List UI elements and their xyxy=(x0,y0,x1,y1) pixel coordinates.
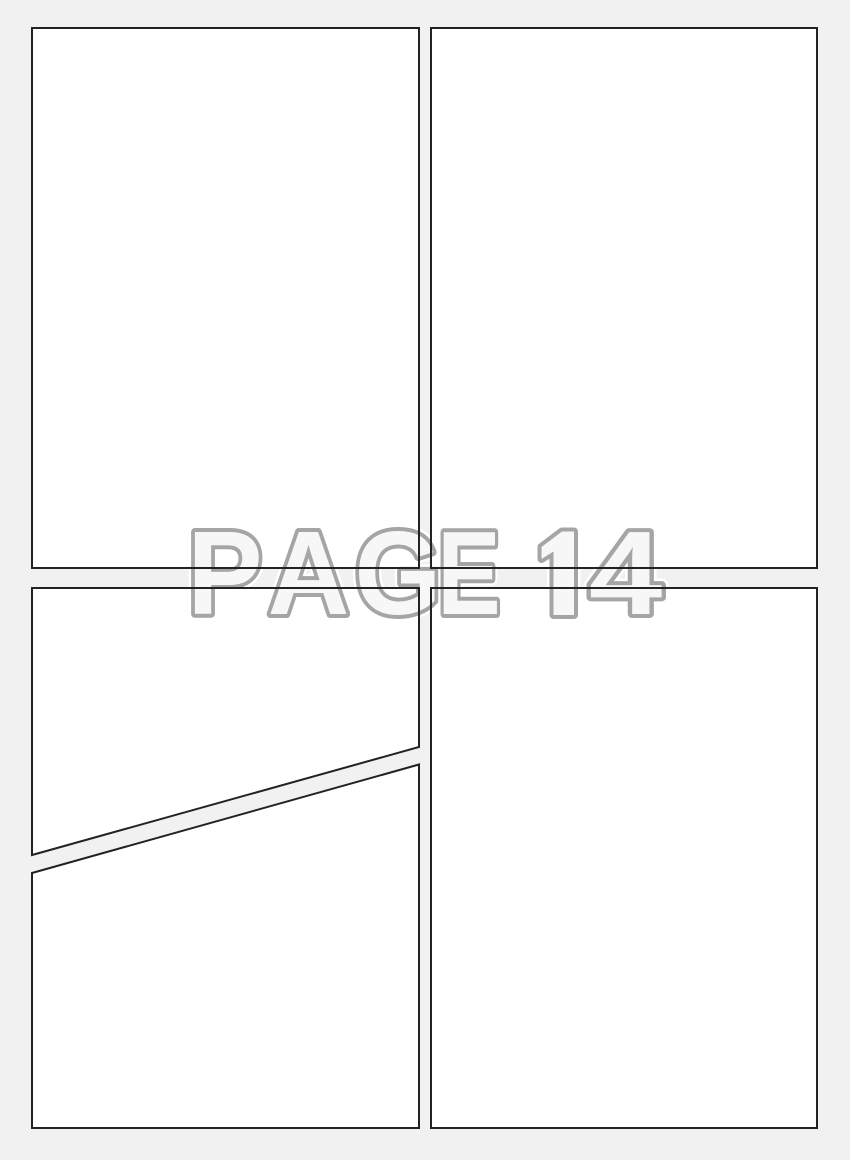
svg-text:A: A xyxy=(268,507,350,640)
svg-text:4: 4 xyxy=(589,507,662,640)
svg-text:E: E xyxy=(437,507,500,640)
svg-text:G: G xyxy=(355,507,442,640)
svg-text:P: P xyxy=(187,507,262,640)
